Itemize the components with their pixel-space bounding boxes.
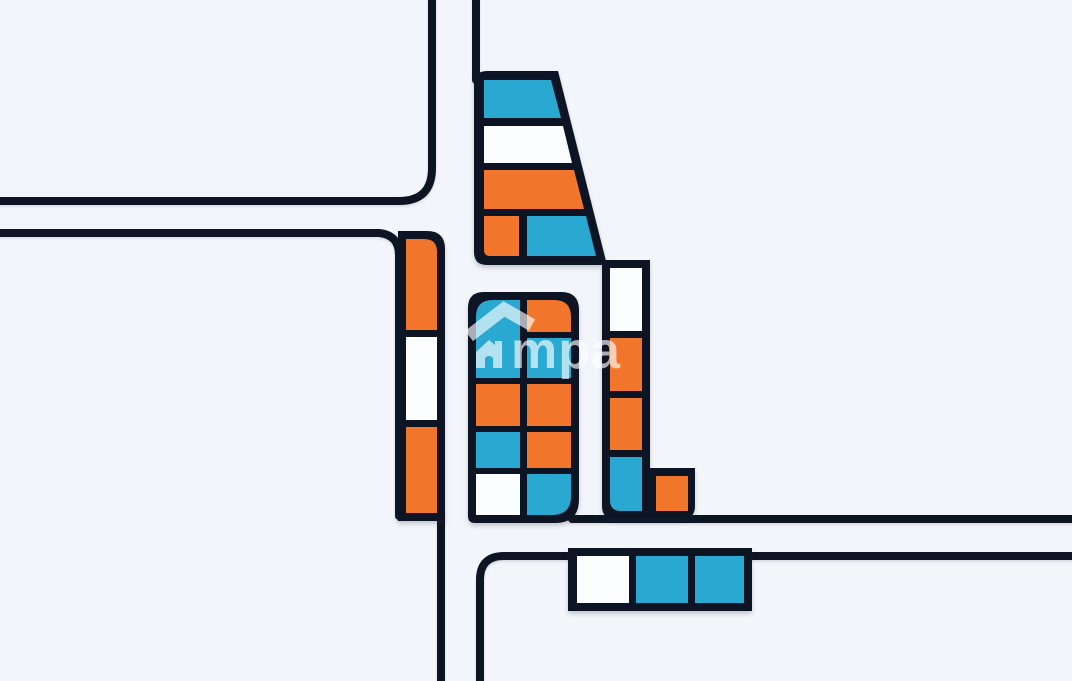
parcel-central-block-7[interactable] — [527, 384, 571, 426]
parcel-east-l-block-4[interactable] — [610, 457, 642, 511]
parcel-south-row-block-3[interactable] — [695, 556, 744, 603]
parcel-central-block-9[interactable] — [527, 474, 571, 515]
watermark-text: mpa — [511, 322, 621, 380]
parcel-central-block-8[interactable] — [527, 432, 571, 468]
parcel-north-trapezoid-block-2[interactable] — [484, 126, 572, 163]
west-strip-block — [398, 231, 445, 521]
south-row-block — [568, 548, 752, 611]
parcel-map: mpa — [0, 0, 1072, 681]
parcel-west-strip-block-2[interactable] — [406, 337, 437, 420]
parcel-north-trapezoid-block-5[interactable] — [527, 216, 596, 256]
parcel-west-strip-block-3[interactable] — [406, 427, 437, 513]
map-svg: mpa — [0, 0, 1072, 681]
parcel-central-block-2[interactable] — [476, 384, 520, 426]
parcel-central-block-4[interactable] — [476, 474, 520, 515]
parcel-south-row-block-2[interactable] — [636, 556, 688, 603]
parcel-north-trapezoid-block-4[interactable] — [484, 216, 519, 256]
parcel-north-trapezoid-block-3[interactable] — [484, 170, 584, 209]
parcel-east-l-block-5[interactable] — [656, 476, 688, 511]
parcel-central-block-3[interactable] — [476, 432, 520, 468]
parcel-north-trapezoid-block-1[interactable] — [484, 80, 561, 118]
parcel-south-row-block-1[interactable] — [577, 556, 629, 603]
parcel-west-strip-block-1[interactable] — [406, 239, 437, 330]
parcel-east-l-block-3[interactable] — [610, 398, 642, 450]
